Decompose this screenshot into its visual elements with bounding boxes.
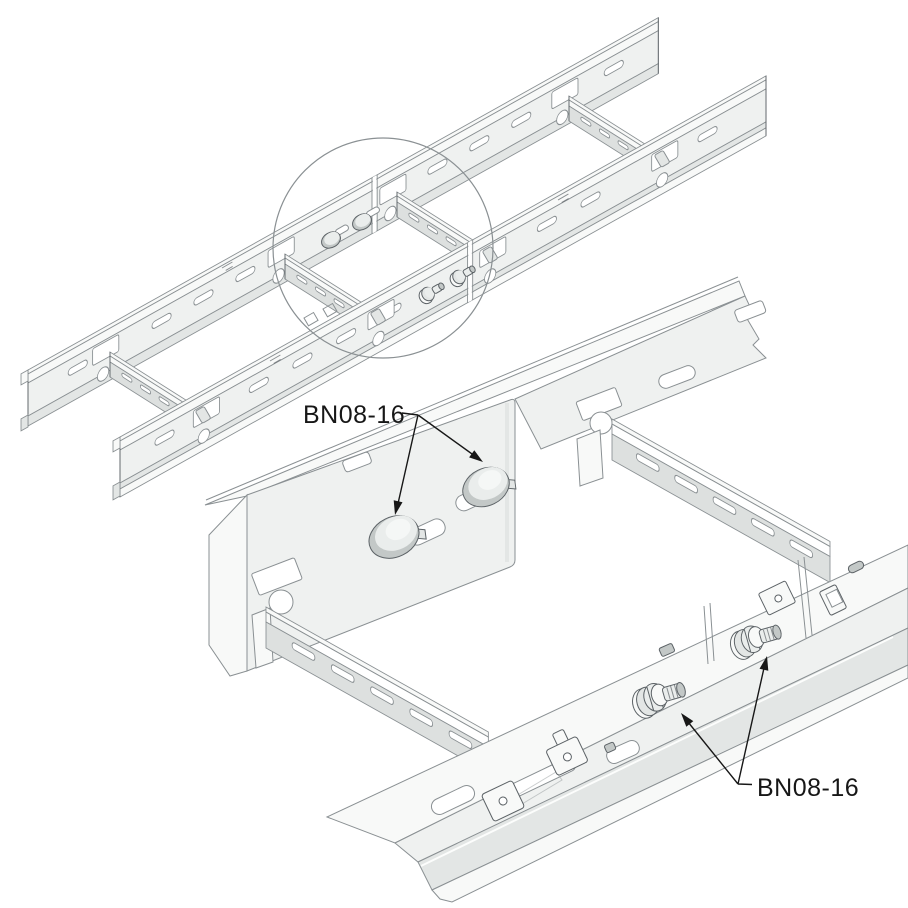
diagram-page: BN08-16 BN08-16: [0, 0, 908, 908]
detail-right-rung: [577, 419, 830, 583]
cable-ladder-splice-diagram: BN08-16 BN08-16: [0, 0, 908, 908]
part-label-nut: BN08-16: [757, 774, 859, 802]
rear-rail-splice-seam: [373, 175, 376, 233]
part-label-bolt: BN08-16: [303, 401, 405, 429]
